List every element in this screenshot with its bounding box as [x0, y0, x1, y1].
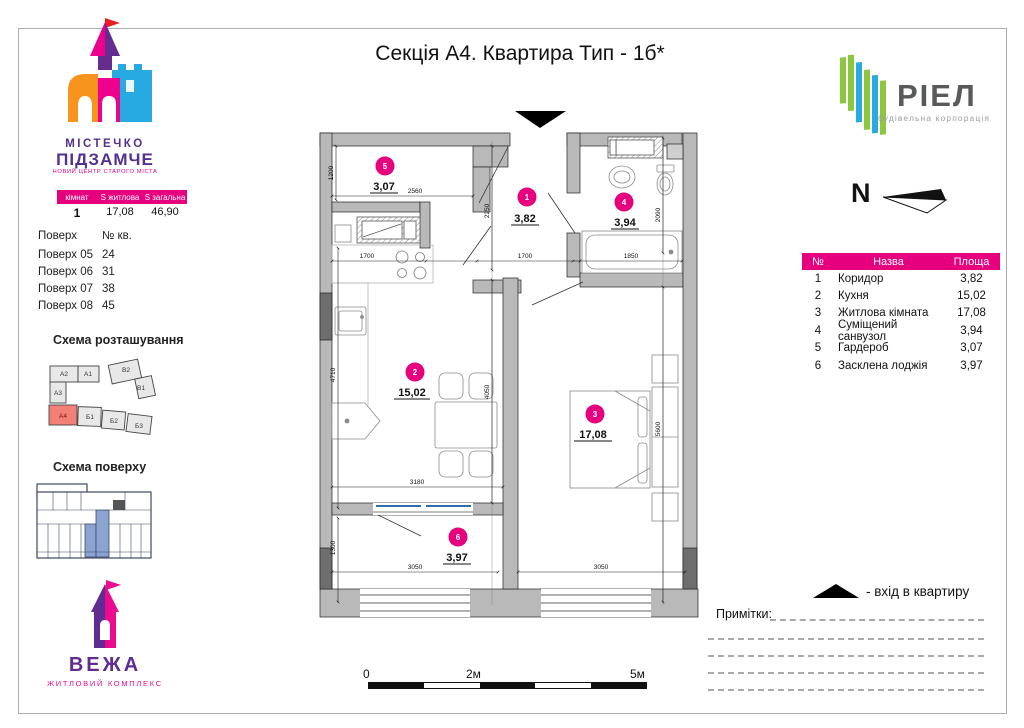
notes-line — [770, 619, 984, 621]
dim-1700-left: 1700 — [360, 253, 375, 260]
dim-4050: 4050 — [484, 384, 491, 399]
mistechko-logo-tagline: НОВИЙ ЦЕНТР СТАРОГО МІСТА — [40, 169, 170, 175]
summary-header-living: S житлова — [97, 193, 143, 202]
dim-1300: 1300 — [330, 540, 337, 555]
dim-3050-right: 3050 — [594, 564, 609, 571]
room-label-kitchen: 2 15,02 — [394, 363, 430, 400]
block-a1: А1 — [84, 371, 92, 378]
north-label: N — [851, 178, 871, 209]
rooms-table-row: 2 Кухня 15,02 — [802, 287, 1000, 304]
svg-text:15,02: 15,02 — [398, 387, 426, 399]
svg-text:5: 5 — [383, 162, 388, 171]
entrance-marker — [515, 111, 566, 128]
dim-5600: 5600 — [655, 421, 662, 436]
riel-logo-name: РІЕЛ — [897, 78, 977, 114]
floor-scheme-thumbnail — [33, 478, 159, 570]
block-a4: А4 — [59, 413, 67, 420]
floors-row: Поверх 05 24 — [38, 249, 198, 261]
riel-logo-tagline: будівельна корпорація — [878, 113, 990, 123]
dim-3050-left: 3050 — [408, 564, 423, 571]
floors-header: Поверх № кв. — [38, 230, 198, 242]
entrance-arrow-icon — [812, 583, 860, 600]
north-arrow-icon — [875, 180, 955, 218]
scale-5m: 5м — [630, 667, 645, 681]
block-a2: А2 — [60, 371, 68, 378]
dim-2250: 2250 — [484, 203, 491, 218]
block-v1: В1 — [137, 385, 145, 392]
floors-row: Поверх 08 45 — [38, 300, 198, 312]
rooms-table-row: 5 Гардероб 3,07 — [802, 340, 1000, 357]
svg-text:17,08: 17,08 — [579, 429, 607, 441]
vezha-logo-tagline: ЖИТЛОВИЙ КОМПЛЕКС — [40, 679, 170, 688]
scale-bar-track — [368, 682, 647, 689]
room-label-hall: 1 3,82 — [511, 188, 539, 226]
svg-text:2: 2 — [413, 368, 418, 377]
summary-header-total: S загальна — [143, 193, 187, 202]
mistechko-logo-line1: МІСТЕЧКО — [40, 138, 170, 150]
summary-total-value: 46,90 — [143, 206, 187, 220]
dim-1850: 1850 — [624, 253, 639, 260]
block-a3: А3 — [54, 390, 62, 397]
summary-table-row: 1 17,08 46,90 — [57, 206, 187, 220]
vent-shaft — [667, 144, 683, 159]
dim-2090: 2090 — [655, 207, 662, 222]
summary-rooms-value: 1 — [57, 206, 97, 220]
scale-0: 0 — [363, 667, 370, 681]
dim-1200: 1200 — [328, 165, 335, 180]
rooms-table-row: 1 Коридор 3,82 — [802, 270, 1000, 287]
notes-line — [708, 638, 984, 640]
svg-text:3,97: 3,97 — [446, 552, 467, 564]
floorplan-drawing: 1200 2560 2250 2090 1700 1700 1850 4710 … — [305, 105, 715, 635]
vezha-logo-name: ВЕЖА — [40, 654, 170, 677]
svg-text:3: 3 — [593, 410, 598, 419]
summary-table-header: кімнат S житлова S загальна — [57, 190, 187, 204]
room-label-wardrobe: 5 3,07 — [370, 157, 398, 194]
svg-text:6: 6 — [456, 533, 461, 542]
floors-row: Поверх 07 38 — [38, 283, 198, 295]
floor-scheme-title: Схема поверху — [53, 460, 233, 474]
svg-text:4: 4 — [622, 198, 627, 207]
svg-text:3,94: 3,94 — [614, 217, 636, 229]
location-scheme-title: Схема розташування — [53, 333, 233, 347]
vezha-tower-logo-icon — [58, 578, 153, 652]
block-v2: В2 — [122, 367, 130, 374]
block-b3: Б3 — [135, 423, 143, 430]
notes-line — [708, 689, 984, 691]
scale-2m: 2м — [466, 667, 481, 681]
notes-line — [708, 672, 984, 674]
summary-living-value: 17,08 — [97, 206, 143, 220]
svg-text:3,82: 3,82 — [514, 213, 535, 225]
location-scheme-map: А2 А1 А3 А4 Б1 Б2 Б3 В2 В1 — [38, 356, 170, 438]
walls — [320, 133, 698, 617]
rooms-table: № Назва Площа 1 Коридор 3,82 2 Кухня 15,… — [802, 253, 1000, 374]
page-title: Секція А4. Квартира Тип - 1б* — [375, 42, 664, 66]
rooms-table-header: № Назва Площа — [802, 253, 1000, 270]
mistechko-castle-logo-icon — [40, 14, 170, 136]
drawing-sheet: МІСТЕЧКО ПІДЗАМЧЕ НОВИЙ ЦЕНТР СТАРОГО МІ… — [0, 0, 1024, 728]
rooms-table-row: 6 Засклена лоджія 3,97 — [802, 357, 1000, 374]
summary-header-rooms: кімнат — [57, 193, 97, 202]
rooms-table-row: 4 Суміщений санвузол 3,94 — [802, 322, 1000, 339]
dim-4710: 4710 — [330, 367, 337, 382]
svg-text:1: 1 — [525, 193, 530, 202]
scale-bar: 0 2м 5м — [362, 667, 654, 693]
notes-label: Примітки: — [716, 607, 772, 621]
floors-row: Поверх 06 31 — [38, 266, 198, 278]
block-b2: Б2 — [110, 418, 118, 425]
dim-3180: 3180 — [410, 479, 425, 486]
floors-col2-label: № кв. — [100, 230, 132, 242]
notes-line — [708, 655, 984, 657]
entrance-legend-label: - вхід в квартиру — [866, 584, 969, 599]
mistechko-logo-line2: ПІДЗАМЧЕ — [40, 150, 170, 170]
room-label-loggia: 6 3,97 — [443, 528, 471, 565]
svg-text:3,07: 3,07 — [373, 181, 394, 193]
floors-col1-label: Поверх — [38, 230, 100, 242]
dim-1700-mid: 1700 — [518, 253, 533, 260]
dim-2560: 2560 — [408, 188, 423, 195]
room-label-bathroom: 4 3,94 — [611, 193, 639, 230]
block-b1: Б1 — [86, 414, 94, 421]
